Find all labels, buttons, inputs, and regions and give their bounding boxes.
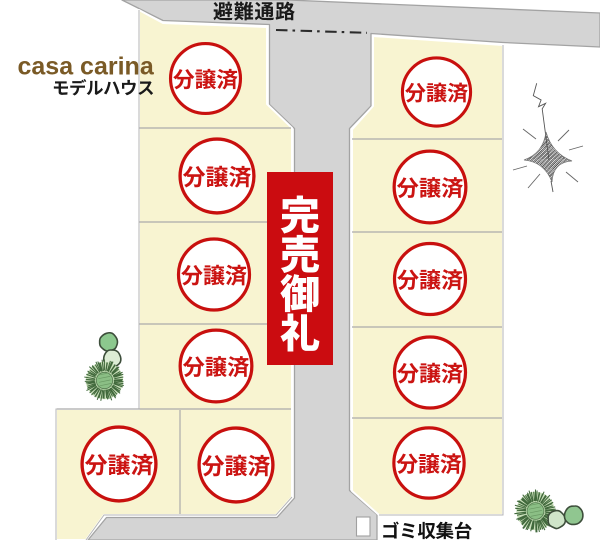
svg-text:casa carina: casa carina: [18, 53, 155, 81]
